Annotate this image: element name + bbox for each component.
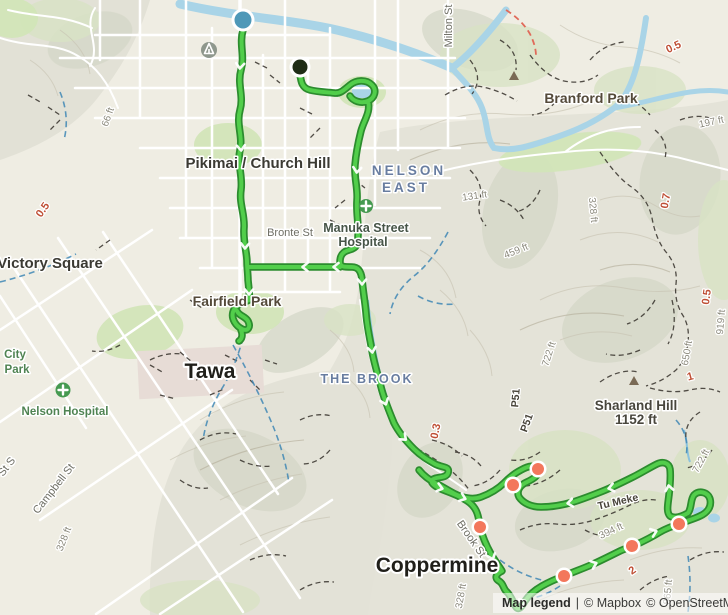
waypoint-marker[interactable] [556,568,573,585]
label-nelson-hospital: Nelson Hospital [22,406,109,418]
label-milton-st: Milton St [443,5,455,48]
osm-attribution-link[interactable]: © OpenStreetMap [646,596,728,610]
waypoint-marker[interactable] [530,461,547,478]
route-map-canvas[interactable]: Milton St Branford Park 0.5 197 ft Pikim… [0,0,728,615]
label-branford-park: Branford Park [544,90,638,106]
waypoint-marker[interactable] [505,477,522,494]
map-legend-link[interactable]: Map legend [502,596,571,610]
pond-east-2 [708,514,720,523]
label-nelson-east-line1: NELSON [372,163,446,178]
map-attribution-bar: Map legend | © Mapbox © OpenStreetMap [493,593,728,613]
label-manuka-hospital-line2: Hospital [338,235,387,249]
label-dist-05-right: 0.5 [700,289,714,306]
attribution-divider: | [576,596,579,610]
label-city-park-line1: City [4,349,26,361]
waypoint-marker[interactable] [671,516,688,533]
label-city-park-line2: Park [5,364,31,376]
label-nelson-east-line2: EAST [382,180,430,195]
label-coppermine: Coppermine [376,554,499,577]
label-sharland-elev: 1152 ft [615,412,658,427]
label-tawa: Tawa [185,360,236,383]
label-victory-square: Victory Square [0,255,103,272]
waypoint-marker[interactable] [624,538,641,555]
route-end-marker[interactable] [290,57,311,78]
label-fairfield-park: Fairfield Park [193,293,282,309]
label-sharland-hill: Sharland Hill [595,398,678,413]
label-elev-328-ne: 328 ft [586,197,599,223]
hospital-icon-nelson [56,383,71,398]
campground-icon [201,42,217,58]
label-trail-p51-a: P51 [509,388,523,408]
label-pikimai-church-hill: Pikimai / Church Hill [185,155,330,172]
label-manuka-hospital-line1: Manuka Street [323,221,409,235]
hospital-icon-manuka [359,199,373,213]
label-the-brook: THE BROOK [321,372,414,386]
label-elev-319-right: 919 ft [715,309,728,335]
route-start-marker[interactable] [232,9,255,32]
label-bronte-st: Bronte St [267,227,313,239]
mapbox-attribution-link[interactable]: © Mapbox [584,596,641,610]
